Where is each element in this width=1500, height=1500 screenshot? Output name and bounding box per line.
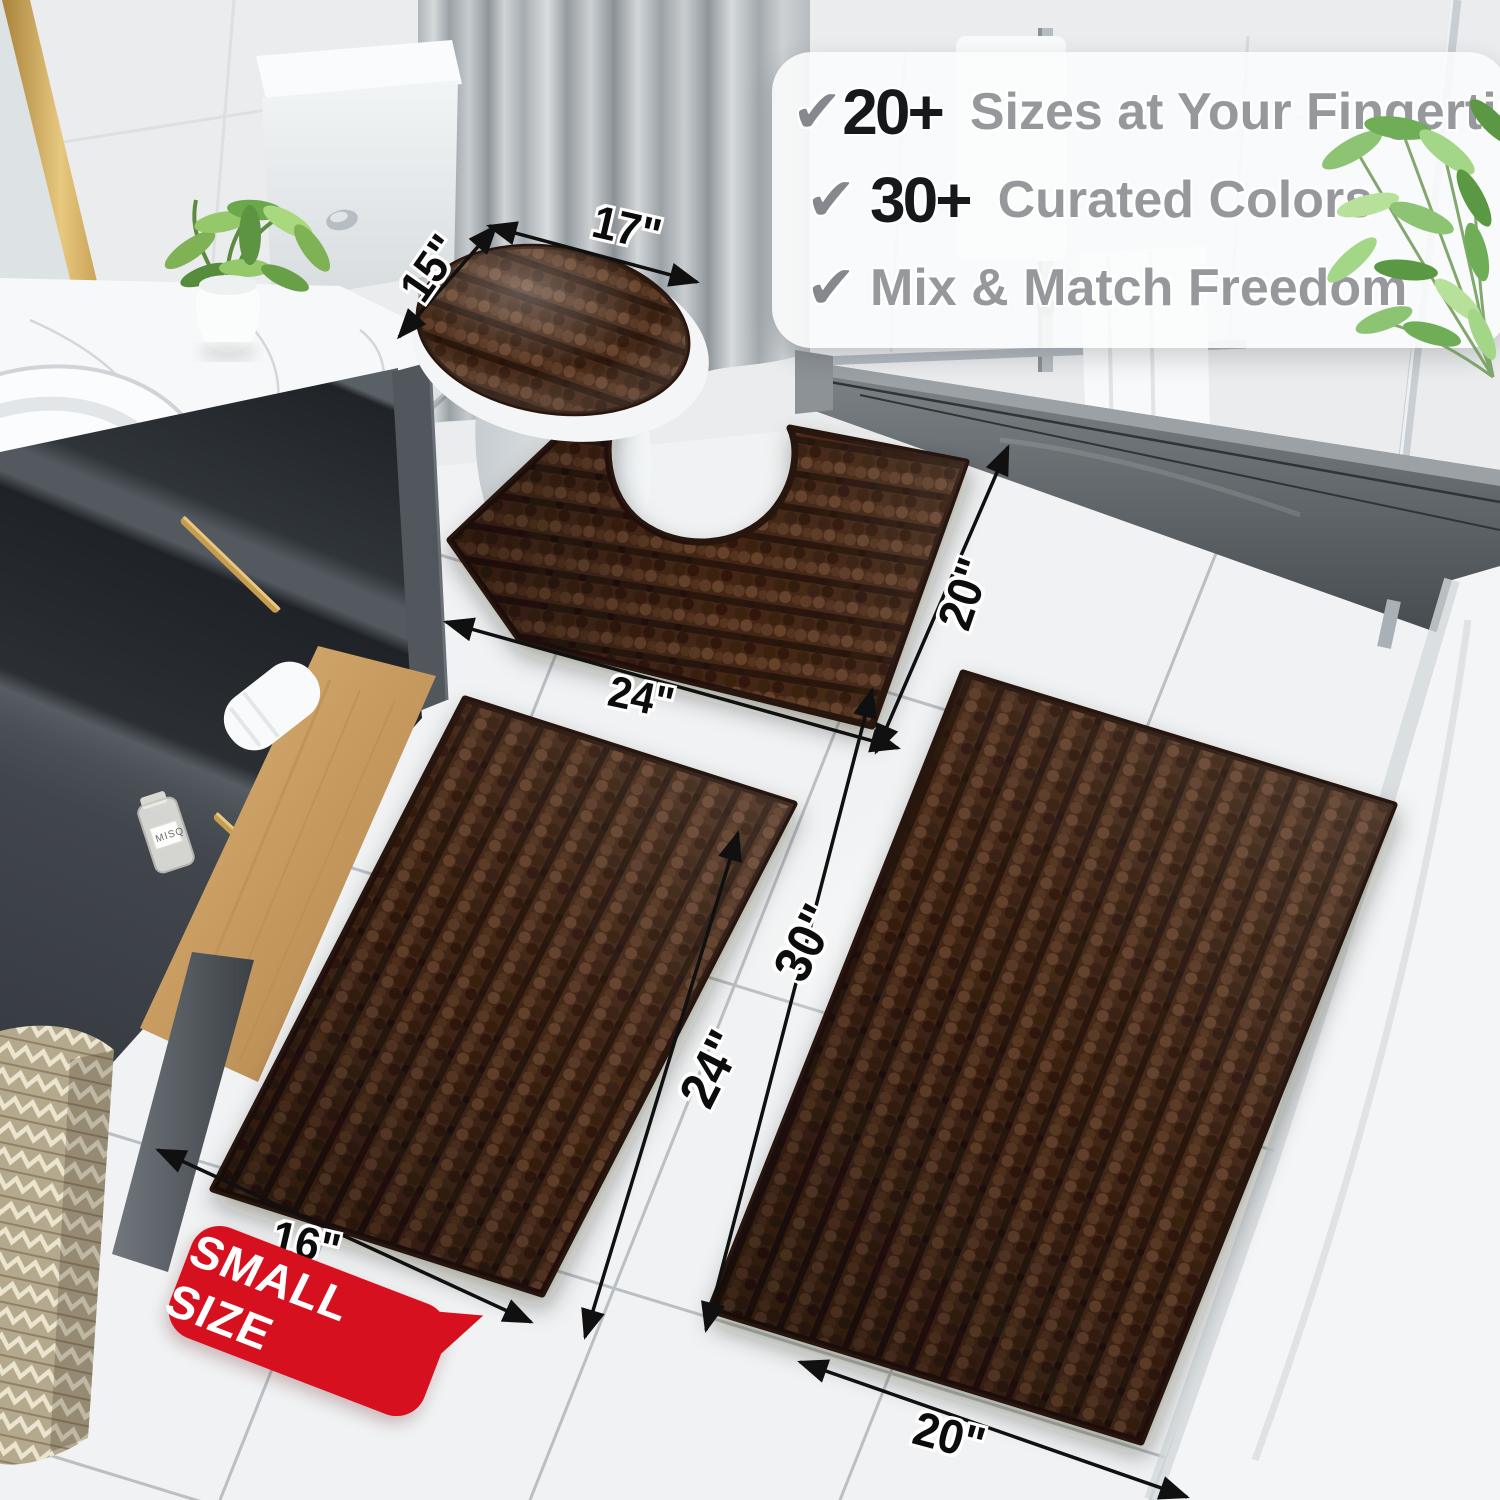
wall-plant <box>1275 85 1500 385</box>
product-image: MISQ <box>0 0 1500 1500</box>
badge-pointer <box>425 1305 487 1364</box>
feature-stat: 30+ <box>870 163 970 237</box>
feature-stat: 20+ <box>842 75 942 149</box>
check-icon: ✔ <box>792 77 842 147</box>
plant-leaves <box>1317 93 1500 363</box>
check-icon: ✔ <box>792 253 870 323</box>
check-icon: ✔ <box>792 165 870 235</box>
